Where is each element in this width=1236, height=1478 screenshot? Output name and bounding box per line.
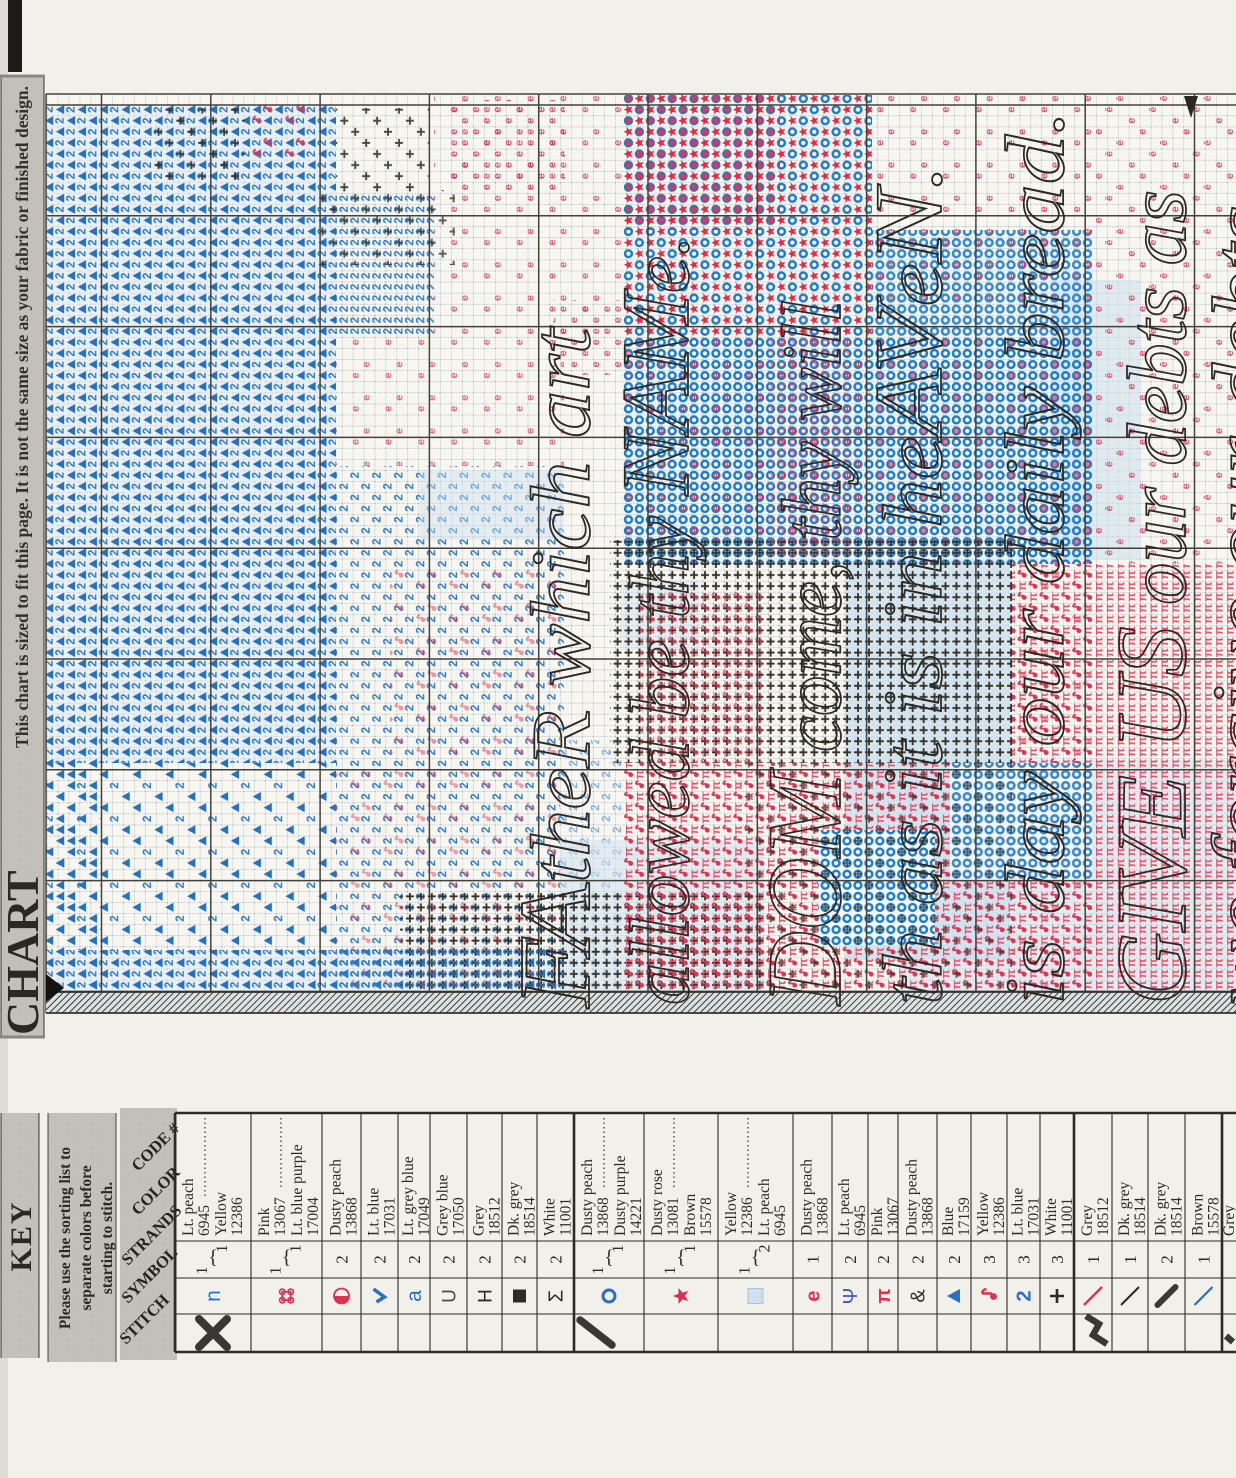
svg-text:3: 3 bbox=[980, 1255, 999, 1264]
svg-text:11001: 11001 bbox=[558, 1198, 575, 1236]
svg-text:U: U bbox=[440, 1289, 461, 1303]
svg-text:2: 2 bbox=[547, 1255, 566, 1264]
svg-text:Pink: Pink bbox=[256, 1207, 273, 1236]
svg-text:2: 2 bbox=[371, 1255, 390, 1264]
svg-text:{: { bbox=[604, 1247, 614, 1269]
svg-text:Lt. blue: Lt. blue bbox=[1010, 1188, 1027, 1236]
svg-text:Yellow: Yellow bbox=[213, 1191, 230, 1236]
svg-text:1: 1 bbox=[804, 1255, 823, 1264]
svg-text:6945: 6945 bbox=[772, 1205, 789, 1236]
svg-text:18514: 18514 bbox=[522, 1197, 539, 1236]
svg-text:Lt. peach: Lt. peach bbox=[756, 1178, 773, 1236]
svg-text:Dusty peach: Dusty peach bbox=[799, 1159, 816, 1236]
svg-text:Brown: Brown bbox=[682, 1194, 699, 1236]
svg-text:12386: 12386 bbox=[739, 1197, 756, 1236]
svg-text:Ψ: Ψ bbox=[840, 1288, 862, 1305]
svg-text:13067: 13067 bbox=[272, 1197, 289, 1236]
svg-text:we forgive our debts: we forgive our debts bbox=[1196, 205, 1236, 1005]
svg-text:17050: 17050 bbox=[451, 1197, 468, 1236]
svg-text:2: 2 bbox=[405, 1255, 424, 1264]
svg-text:17031: 17031 bbox=[1026, 1197, 1043, 1236]
svg-text:FAtheR which art: FAtheR which art bbox=[499, 325, 612, 1009]
svg-text:2: 2 bbox=[909, 1255, 928, 1264]
svg-text:12386: 12386 bbox=[229, 1197, 246, 1236]
svg-text:18512: 18512 bbox=[487, 1197, 504, 1236]
svg-text:Dk. grey: Dk. grey bbox=[1153, 1182, 1170, 1236]
svg-text:allowed be thy NAMe.: allowed be thy NAMe. bbox=[602, 235, 709, 1005]
svg-text:Blue: Blue bbox=[940, 1207, 957, 1236]
svg-text:18514: 18514 bbox=[1169, 1197, 1186, 1236]
svg-text:π: π bbox=[873, 1288, 895, 1303]
svg-text:11001: 11001 bbox=[1059, 1198, 1076, 1236]
svg-text:This chart is sized to fit thi: This chart is sized to fit this page. It… bbox=[12, 86, 32, 748]
svg-text:&: & bbox=[908, 1289, 930, 1303]
svg-text:Pink: Pink bbox=[869, 1207, 886, 1236]
svg-text:2: 2 bbox=[1014, 1290, 1036, 1301]
svg-text:th as it is in heAVeN.: th as it is in heAVeN. bbox=[855, 165, 962, 1005]
svg-text:13067: 13067 bbox=[885, 1197, 902, 1236]
svg-text:15578: 15578 bbox=[698, 1197, 715, 1236]
svg-text:is day our daily bread.: is day our daily bread. bbox=[989, 110, 1082, 1005]
svg-text:12386: 12386 bbox=[991, 1197, 1008, 1236]
svg-text:Dk. grey: Dk. grey bbox=[1116, 1182, 1133, 1236]
svg-text:Lt. grey blue: Lt. grey blue bbox=[400, 1156, 417, 1236]
svg-text:2: 2 bbox=[945, 1255, 964, 1264]
svg-text:Dusty peach: Dusty peach bbox=[904, 1159, 921, 1236]
svg-text:13868: 13868 bbox=[344, 1197, 361, 1236]
svg-text:Lt. peach: Lt. peach bbox=[836, 1178, 853, 1236]
svg-text:separate colors before: separate colors before bbox=[78, 1165, 95, 1310]
svg-text:Dusty purple: Dusty purple bbox=[612, 1155, 629, 1236]
svg-text:Dusty peach: Dusty peach bbox=[328, 1159, 345, 1236]
svg-text:starting to stitch.: starting to stitch. bbox=[99, 1182, 116, 1294]
svg-text:Σ: Σ bbox=[546, 1290, 568, 1302]
svg-text:{: { bbox=[208, 1247, 218, 1269]
svg-text:2: 2 bbox=[874, 1255, 893, 1264]
svg-text:1: 1 bbox=[1084, 1255, 1103, 1264]
svg-text:Dusty peach: Dusty peach bbox=[579, 1159, 596, 1236]
svg-text:13868: 13868 bbox=[815, 1197, 832, 1236]
svg-text:17159: 17159 bbox=[956, 1197, 973, 1236]
svg-text:2: 2 bbox=[1158, 1255, 1177, 1264]
svg-text:13868: 13868 bbox=[595, 1197, 612, 1236]
svg-text:6945: 6945 bbox=[196, 1205, 213, 1236]
svg-text:e: e bbox=[803, 1290, 825, 1301]
svg-text:CHART: CHART bbox=[0, 870, 48, 1035]
svg-text:13081: 13081 bbox=[665, 1197, 682, 1236]
svg-text:1: 1 bbox=[1195, 1255, 1214, 1264]
svg-text:17031: 17031 bbox=[382, 1197, 399, 1236]
svg-text:Lt. blue purple: Lt. blue purple bbox=[289, 1144, 306, 1236]
svg-text:3: 3 bbox=[1048, 1255, 1067, 1264]
svg-text:2: 2 bbox=[511, 1255, 530, 1264]
svg-text:a: a bbox=[403, 1290, 426, 1302]
svg-text:13868: 13868 bbox=[920, 1197, 937, 1236]
svg-text:2: 2 bbox=[476, 1255, 495, 1264]
svg-text:17004: 17004 bbox=[305, 1197, 322, 1236]
svg-text:Lt. peach: Lt. peach bbox=[180, 1178, 197, 1236]
svg-text:{: { bbox=[751, 1247, 761, 1269]
svg-text:GIVE US our debts as: GIVE US our debts as bbox=[1096, 190, 1207, 1005]
svg-text:2: 2 bbox=[841, 1255, 860, 1264]
svg-text:14221: 14221 bbox=[628, 1197, 645, 1236]
svg-text:6945: 6945 bbox=[852, 1205, 869, 1236]
svg-text:17049: 17049 bbox=[416, 1197, 433, 1236]
svg-text:15578: 15578 bbox=[1206, 1197, 1223, 1236]
svg-text:Lt. blue: Lt. blue bbox=[366, 1188, 383, 1236]
svg-text:Grey: Grey bbox=[1221, 1205, 1236, 1236]
svg-text:Yellow: Yellow bbox=[975, 1191, 992, 1236]
svg-text:Grey blue: Grey blue bbox=[435, 1174, 452, 1236]
svg-text:18514: 18514 bbox=[1132, 1197, 1149, 1236]
svg-text:2: 2 bbox=[333, 1255, 352, 1264]
svg-text:White: White bbox=[1043, 1198, 1060, 1236]
svg-text:{: { bbox=[282, 1247, 292, 1269]
svg-text:Grey: Grey bbox=[471, 1205, 488, 1236]
svg-text:Brown: Brown bbox=[1190, 1194, 1207, 1236]
svg-text:H: H bbox=[476, 1289, 497, 1303]
svg-text:2: 2 bbox=[440, 1255, 459, 1264]
svg-text:Please use the sorting list to: Please use the sorting list to bbox=[57, 1147, 74, 1329]
svg-text:n: n bbox=[202, 1290, 225, 1302]
svg-text:Dk. grey: Dk. grey bbox=[506, 1182, 523, 1236]
svg-text:KEY: KEY bbox=[5, 1200, 38, 1271]
svg-text:Grey: Grey bbox=[1079, 1205, 1096, 1236]
svg-text:3: 3 bbox=[1015, 1255, 1034, 1264]
svg-text:{: { bbox=[676, 1247, 686, 1269]
svg-text:Yellow: Yellow bbox=[723, 1191, 740, 1236]
svg-text:White: White bbox=[542, 1198, 559, 1236]
svg-text:18512: 18512 bbox=[1095, 1197, 1112, 1236]
svg-text:Dusty rose: Dusty rose bbox=[649, 1169, 666, 1236]
svg-text:1: 1 bbox=[1121, 1255, 1140, 1264]
